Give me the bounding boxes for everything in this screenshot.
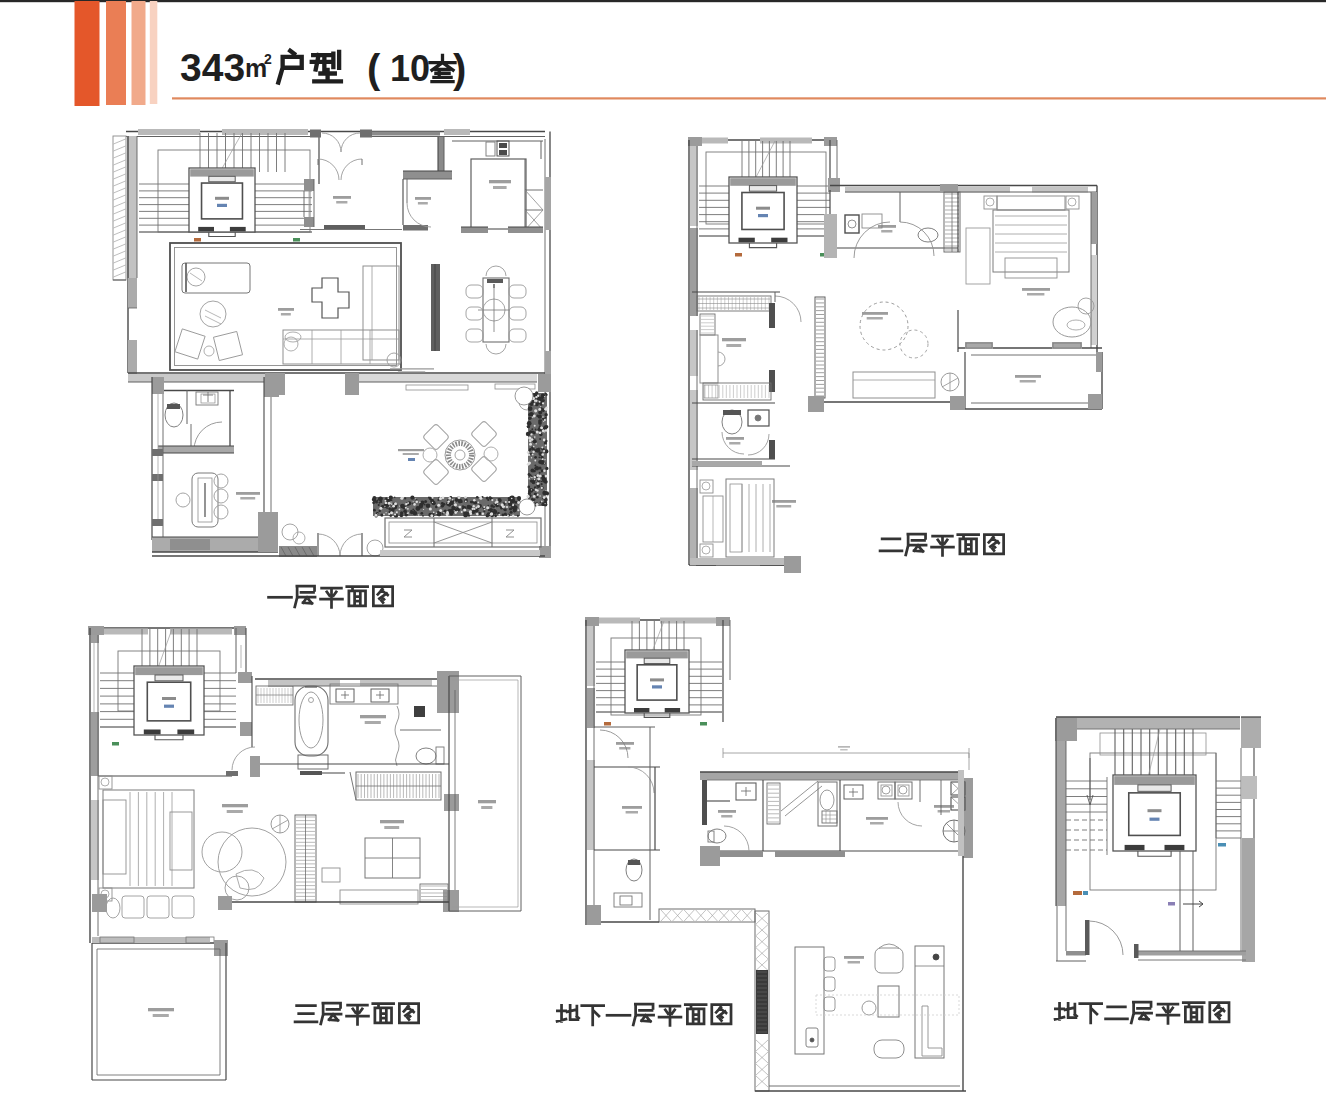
svg-text:2: 2 [264,51,272,67]
svg-text:10: 10 [390,48,430,89]
svg-text:(: ( [367,47,381,91]
svg-text:): ) [453,47,466,91]
svg-text:343: 343 [180,46,245,89]
